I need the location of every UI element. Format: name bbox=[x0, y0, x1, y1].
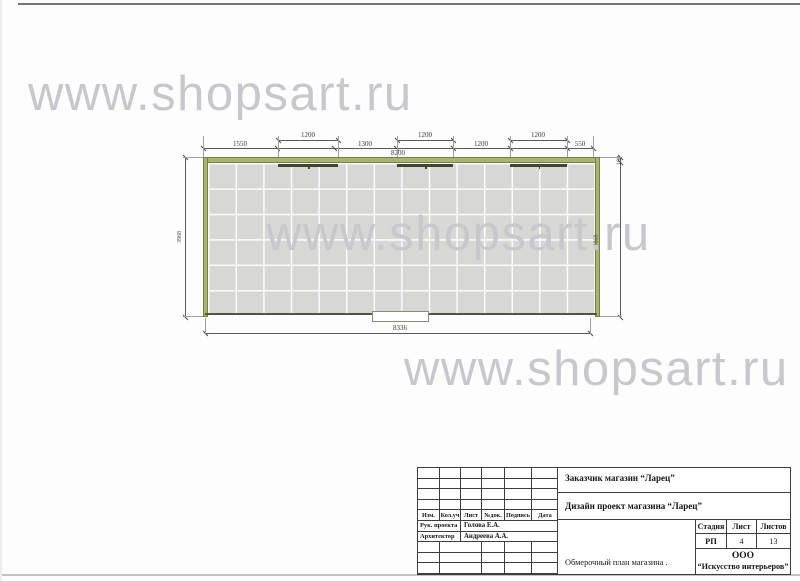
dim-label-window-2: 1200 bbox=[405, 132, 445, 139]
revision-cell bbox=[505, 479, 532, 490]
dim-label-chain-1: 1550 bbox=[220, 141, 260, 148]
sheets-value: 13 bbox=[757, 534, 790, 548]
revision-cell bbox=[505, 553, 532, 564]
watermark-middle: www.shopsart.ru bbox=[266, 210, 651, 259]
revision-header-cell: №док. bbox=[482, 510, 505, 521]
sheet-header: Лист bbox=[727, 520, 757, 533]
revision-cell bbox=[482, 563, 505, 574]
revision-header-cell: Лист bbox=[461, 510, 482, 521]
dim-label-chain-2: 1300 bbox=[345, 141, 385, 148]
watermark-top: www.shopsart.ru bbox=[28, 70, 413, 119]
dim-line-bottom bbox=[205, 333, 590, 334]
company-cell: ООО “Искусство интерьеров” bbox=[696, 549, 790, 574]
revision-cell bbox=[482, 468, 505, 479]
window-opening-3 bbox=[510, 164, 567, 167]
dim-line-window-3 bbox=[510, 140, 567, 141]
revision-cell bbox=[532, 563, 558, 574]
revision-cell bbox=[532, 479, 558, 490]
revision-header-cell: Кол.уч bbox=[440, 510, 461, 521]
extension-line bbox=[338, 136, 339, 157]
revision-cell bbox=[440, 500, 461, 511]
dim-label-left-height: 3968 bbox=[177, 222, 185, 252]
revision-cell bbox=[532, 489, 558, 500]
revision-cell bbox=[482, 479, 505, 490]
revision-header-cell: Изм. bbox=[418, 510, 440, 521]
revision-cell bbox=[532, 542, 558, 553]
extension-line bbox=[453, 136, 454, 157]
revision-cell bbox=[440, 542, 461, 553]
revision-cell bbox=[461, 489, 482, 500]
extension-line bbox=[600, 316, 622, 317]
extension-line bbox=[183, 157, 203, 158]
company-name-line2: “Искусство интерьеров” bbox=[698, 562, 789, 571]
revision-cell bbox=[482, 553, 505, 564]
watermark-bottom: www.shopsart.ru bbox=[404, 345, 789, 394]
extension-line bbox=[205, 318, 206, 334]
extension-line bbox=[590, 318, 591, 334]
revision-cell bbox=[440, 563, 461, 574]
window-opening-2 bbox=[397, 164, 453, 167]
extension-line bbox=[183, 316, 203, 317]
revision-cell bbox=[532, 553, 558, 564]
stage-value: РП bbox=[696, 534, 727, 548]
extension-line bbox=[600, 157, 622, 158]
revision-cell bbox=[440, 553, 461, 564]
window-opening-1 bbox=[278, 164, 338, 167]
wall-left bbox=[203, 157, 208, 317]
extension-line bbox=[397, 136, 398, 157]
extension-line bbox=[510, 136, 511, 157]
dim-line-left bbox=[185, 157, 186, 317]
extension-line bbox=[278, 136, 279, 157]
revision-cell bbox=[418, 468, 440, 479]
revision-cell bbox=[505, 563, 532, 574]
revision-cell bbox=[461, 553, 482, 564]
extension-line bbox=[593, 136, 594, 157]
dim-label-window-3: 1200 bbox=[518, 132, 558, 139]
stage-table: Стадия Лист Листов РП 4 13 ООО “Искусств… bbox=[696, 520, 790, 574]
revision-cell bbox=[440, 489, 461, 500]
revision-cell bbox=[418, 479, 440, 490]
revision-cell bbox=[505, 500, 532, 511]
revision-cell bbox=[418, 553, 440, 564]
revision-cell bbox=[461, 479, 482, 490]
revision-cell bbox=[505, 468, 532, 479]
project-cell: Дизайн проект магазина “Ларец” bbox=[558, 493, 790, 520]
scan-edge-top bbox=[18, 3, 800, 5]
revision-cell bbox=[505, 542, 532, 553]
revision-header-cell: Дата bbox=[532, 510, 558, 521]
dim-label-window-1: 1200 bbox=[288, 132, 328, 139]
revision-cell bbox=[482, 489, 505, 500]
revision-cell bbox=[418, 500, 440, 511]
role-name: Андреева А.А. bbox=[461, 532, 558, 543]
revision-cell bbox=[418, 563, 440, 574]
extension-line bbox=[567, 136, 568, 157]
revision-cell bbox=[461, 500, 482, 511]
role-label: Архитектор bbox=[418, 532, 461, 543]
role-name: Голова Е.А. bbox=[461, 521, 558, 532]
revision-cell bbox=[461, 563, 482, 574]
revision-header-cell: Подпись bbox=[505, 510, 532, 521]
dim-line-window-1 bbox=[278, 140, 338, 141]
revision-cell bbox=[440, 479, 461, 490]
revision-cell bbox=[418, 542, 440, 553]
revision-cell bbox=[461, 468, 482, 479]
company-name-line1: ООО bbox=[732, 551, 754, 562]
revision-cell bbox=[440, 468, 461, 479]
customer-cell: Заказчик магазин “Ларец” bbox=[558, 468, 790, 493]
scan-edge-left bbox=[0, 0, 2, 581]
revision-cell bbox=[482, 500, 505, 511]
revision-cell bbox=[532, 468, 558, 479]
title-block-right: Заказчик магазин “Ларец” Дизайн проект м… bbox=[558, 468, 790, 574]
revision-cell bbox=[461, 542, 482, 553]
scanned-drawing-sheet: { "watermark": { "text": "www.shopsart.r… bbox=[0, 0, 800, 581]
sheets-header: Листов bbox=[757, 520, 790, 533]
title-block: Изм.Кол.учЛист№док.ПодписьДатаРук. проек… bbox=[417, 467, 791, 575]
drawing-title-cell: Обмерочный план магазина . bbox=[558, 520, 696, 574]
revision-table: Изм.Кол.учЛист№док.ПодписьДатаРук. проек… bbox=[418, 468, 558, 574]
revision-cell bbox=[505, 489, 532, 500]
revision-cell bbox=[482, 542, 505, 553]
stage-header: Стадия bbox=[696, 520, 727, 533]
dim-label-bottom-total: 8336 bbox=[380, 325, 420, 332]
wall-top bbox=[203, 157, 600, 163]
entrance-door bbox=[372, 311, 429, 322]
role-label: Рук. проекта bbox=[418, 521, 461, 532]
extension-line bbox=[203, 136, 204, 157]
dim-label-chain-3: 1200 bbox=[461, 141, 501, 148]
revision-cell bbox=[532, 500, 558, 511]
sheet-value: 4 bbox=[727, 534, 757, 548]
dim-line-window-2 bbox=[397, 140, 453, 141]
revision-cell bbox=[418, 489, 440, 500]
